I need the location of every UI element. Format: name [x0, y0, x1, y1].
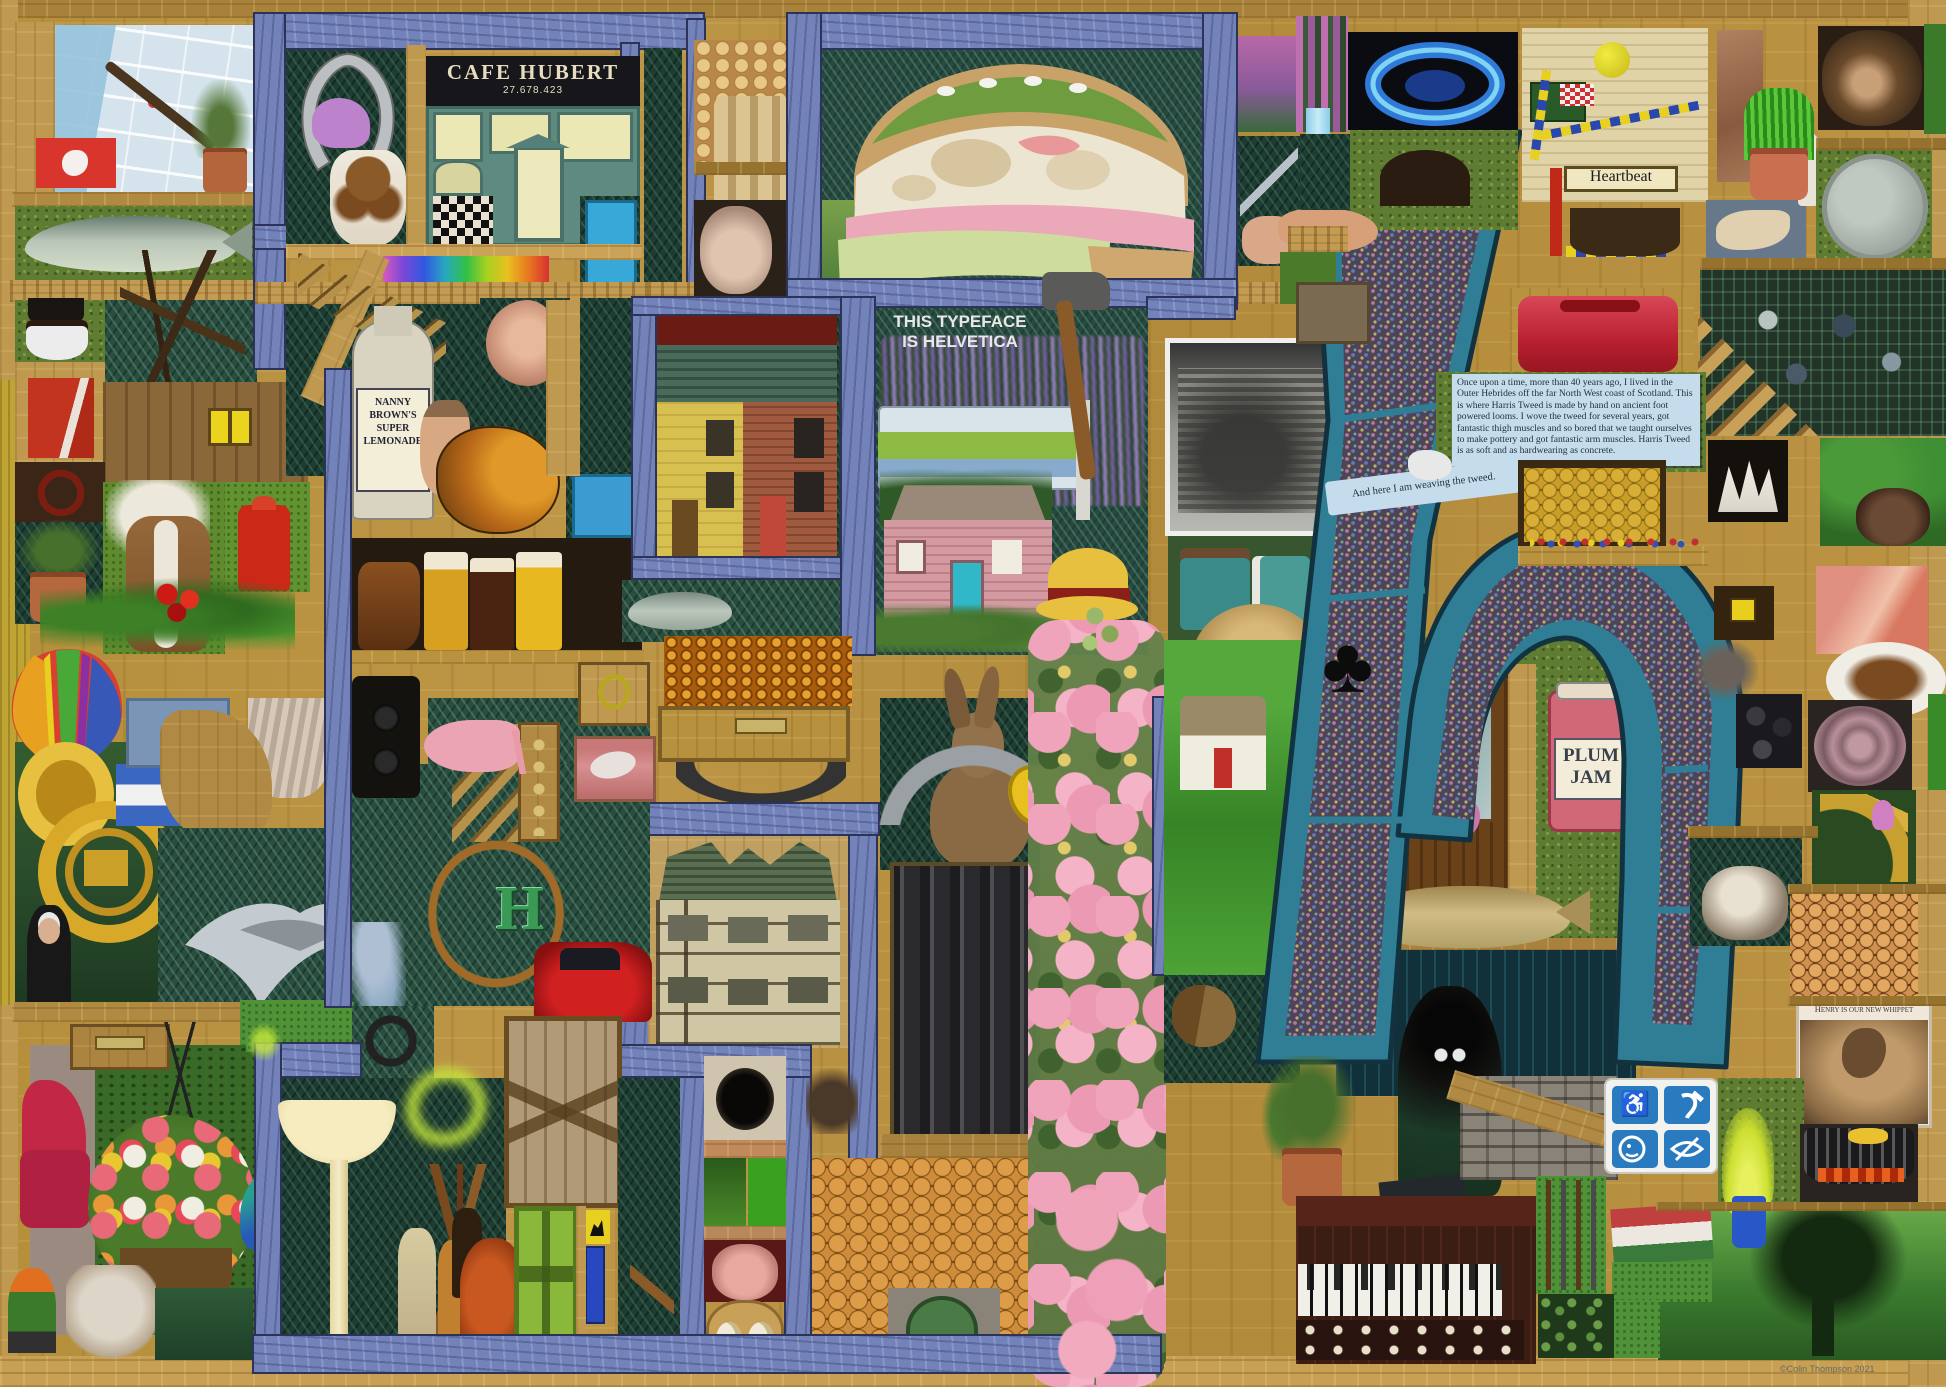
- svg-text:♣: ♣: [1322, 621, 1373, 709]
